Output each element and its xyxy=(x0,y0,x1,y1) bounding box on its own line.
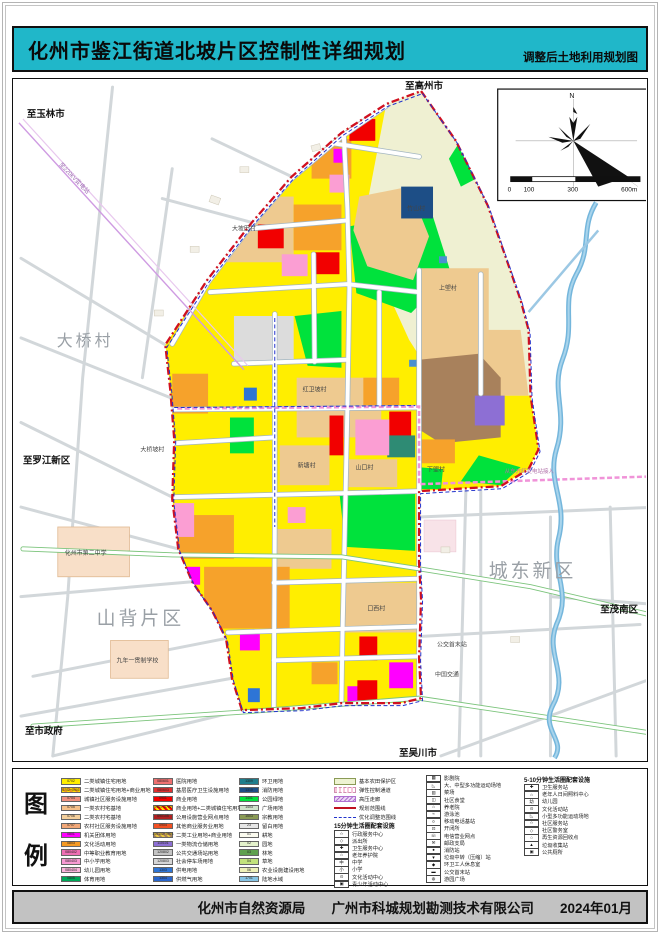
label-hv-line: 至220kV变电站 xyxy=(57,161,91,196)
legend-label: 青少年活动中心 xyxy=(352,881,388,888)
legend-swatch: 0702 xyxy=(61,778,81,784)
legend-label: 文化活动站 xyxy=(542,806,568,813)
legend-label: 农村社区服务设施用地 xyxy=(84,822,137,830)
legend-label: 农业设施建设用地 xyxy=(262,866,304,874)
legend-item: 04草地 xyxy=(239,857,304,866)
legend-label: 二类城镇住宅用地+商业用地 xyxy=(84,786,151,794)
compass-scale-box: N 0 100 300 600m xyxy=(498,89,646,200)
legend-label: 文化活动用地 xyxy=(84,840,116,848)
legend-line-swatch xyxy=(334,778,356,784)
legend-label: 公园绿地 xyxy=(262,795,283,803)
legend-label: 优化调整范围线 xyxy=(359,813,396,821)
legend-label: 高压走廊 xyxy=(359,795,380,803)
legend-col-5: ▦影剧院◺大、中型多功能运动场地▥菜场◫社区食堂⌂养老院≈游泳池¤移动电话基站⊡… xyxy=(426,775,501,883)
legend-item: 0702二类城镇住宅用地 xyxy=(61,777,151,786)
legend-swatch: 1401 xyxy=(239,796,259,802)
legend-label: 一类农村宅基地 xyxy=(84,804,121,812)
legend-swatch: 0901+0702 xyxy=(153,805,173,811)
label-school2: 化州市第二中学 xyxy=(65,549,107,557)
legend-facility-item: ▣青少年活动中心 xyxy=(334,881,396,888)
legend-label: 林地 xyxy=(262,849,273,857)
legend-label: 老年养护院 xyxy=(352,852,378,859)
legend-label: 社区警务室 xyxy=(542,827,568,834)
label-jiaotong: 中国交通 xyxy=(435,670,459,678)
parcels-layer xyxy=(165,91,538,710)
label-corridor: 从东方红变电站接入 xyxy=(505,467,555,475)
legend-label: 小型多功能运动场地 xyxy=(542,813,589,820)
legend-item: 1701陆地水域 xyxy=(239,875,304,884)
page-subtitle: 调整后土地利用规划图 xyxy=(523,49,646,70)
legend-swatch: 01 xyxy=(239,832,259,838)
legend-item: 080404幼儿园用地 xyxy=(61,866,151,875)
legend-label: 草地 xyxy=(262,857,273,865)
legend-label: 基本农田保护区 xyxy=(359,777,396,785)
label-to-shizhengfu: 至市政府 xyxy=(25,725,63,737)
legend-item: 1403广场用地 xyxy=(239,804,304,813)
label-to-gaozhou: 至高州市 xyxy=(405,80,443,92)
legend-item: 1309环卫用地 xyxy=(239,777,304,786)
legend-swatch: 0702+0901 xyxy=(61,787,81,793)
legend-item: 0801机关团体用地 xyxy=(61,830,151,839)
legend-label: 商业用地 xyxy=(176,795,197,803)
legend-char-li: 例 xyxy=(24,836,48,871)
legend-label: 二类农村宅基地 xyxy=(84,813,121,821)
legend-label: 二类城镇住宅用地 xyxy=(84,777,126,785)
legend-facility-item: ◍游园广场 xyxy=(426,876,501,883)
legend-label: 游园广场 xyxy=(444,876,465,883)
label-daqiaopo: 大桥坡村 xyxy=(140,445,164,453)
legend-label: 其他商业服务业用地 xyxy=(176,822,224,830)
legend-swatch: 0805 xyxy=(61,876,81,882)
label-hongwei: 红卫坡村 xyxy=(303,386,327,394)
legend-item: 0805体育用地 xyxy=(61,875,151,884)
label-dapotian: 大坡田村 xyxy=(232,224,256,232)
label-xialang: 下塱村 xyxy=(427,465,445,473)
legend-label: 城镇社区服务设施用地 xyxy=(84,795,137,803)
legend-swatch: 1701 xyxy=(239,876,259,882)
label-to-luojiang: 至罗江新区 xyxy=(23,454,71,466)
scale-tick-300: 300 xyxy=(567,187,578,194)
legend-section-title: 15分钟生活圈配套设施 xyxy=(334,821,396,830)
legend-item: 0706二类农村宅基地 xyxy=(61,813,151,822)
legend-swatch: 110101 xyxy=(153,841,173,847)
legend-swatch: 04 xyxy=(239,858,259,864)
title-bar: 化州市鉴江街道北坡片区控制性详细规划 调整后土地利用规划图 xyxy=(12,26,648,72)
legend-label: 医院用地 xyxy=(176,777,197,785)
label-kouxi: 口西村 xyxy=(367,605,385,613)
legend-label: 中小学用地 xyxy=(84,857,111,865)
legend-swatch: 100102+0901 xyxy=(153,832,173,838)
footer-bar: 化州市自然资源局 广州市科城规划勘测技术有限公司 2024年01月 xyxy=(12,890,648,924)
legend-label: 小学 xyxy=(352,866,362,873)
legend-line-swatch xyxy=(334,796,356,802)
legend-label: 基层医疗卫生设施用地 xyxy=(176,786,229,794)
legend-swatch: 0707 xyxy=(61,823,81,829)
legend-swatch: 0801 xyxy=(61,832,81,838)
legend-swatch: 0705 xyxy=(61,805,81,811)
legend-label: 社会停车场用地 xyxy=(176,857,213,865)
legend-line-swatch xyxy=(334,817,356,818)
legend-label: 陆地水域 xyxy=(262,875,283,883)
legend-item: 03林地 xyxy=(239,848,304,857)
legend-label: 商业用地+二类城镇住宅用地 xyxy=(176,804,243,812)
label-shanglang: 上塱村 xyxy=(439,284,457,292)
legend-item: 弹性控制通道 xyxy=(334,786,396,795)
east-district-parcel xyxy=(424,520,456,552)
legend-label: 菜场 xyxy=(444,789,454,796)
legend-label: 大、中型多功能运动场地 xyxy=(444,782,501,789)
page-title: 化州市鉴江街道北坡片区控制性详细规划 xyxy=(14,35,406,64)
legend-label: 移动电话基站 xyxy=(444,818,475,825)
legend-label: 幼儿园用地 xyxy=(84,866,111,874)
legend-label: 二类工业用地+商业用地 xyxy=(176,831,232,839)
legend-item: 0901商业用地 xyxy=(153,795,243,804)
legend-swatch: 0901 xyxy=(153,796,173,802)
legend-label: 弹性控制通道 xyxy=(359,786,391,794)
label-to-yulin: 至玉林市 xyxy=(27,108,65,120)
legend-label: 一类物流仓储用地 xyxy=(176,840,218,848)
legend-label: 宗教用地 xyxy=(262,813,283,821)
legend-item: 080403中小学用地 xyxy=(61,857,151,866)
scale-tick-100: 100 xyxy=(524,187,535,194)
label-to-wuchuan: 至吴川市 xyxy=(399,747,437,759)
legend-item: 110101一类物流仓储用地 xyxy=(153,839,243,848)
legend-swatch: 06 xyxy=(239,867,259,873)
legend-swatch: 0706 xyxy=(61,814,81,820)
label-daqiao-village: 大桥村 xyxy=(57,332,114,350)
legend-col-3: 1309环卫用地1310消防用地1401公园绿地1403广场用地1503宗教用地… xyxy=(239,777,304,884)
legend-swatch: 1403 xyxy=(239,805,259,811)
legend-label: 环卫工人休息室 xyxy=(444,861,480,868)
north-label: N xyxy=(569,93,574,100)
legend-swatch: 0803 xyxy=(61,841,81,847)
stream xyxy=(529,230,599,312)
legend-item: 120803社会停车场用地 xyxy=(153,857,243,866)
legend-label: 文化活动中心 xyxy=(352,874,383,881)
legend-item: 规划范围线 xyxy=(334,804,396,813)
legend-swatch: 120802 xyxy=(153,849,173,855)
legend-swatch: 080601 xyxy=(153,778,173,784)
legend-label: 公共厕所 xyxy=(542,849,563,856)
legend-line-swatch xyxy=(334,787,356,793)
legend-label: 派出所 xyxy=(352,838,368,845)
legend-label: 留白用地 xyxy=(262,822,283,830)
label-shankou: 山口村 xyxy=(355,463,373,471)
plan-sheet: 化州市鉴江街道北坡片区控制性详细规划 调整后土地利用规划图 xyxy=(0,0,660,934)
label-bus-terminal: 公交首末站 xyxy=(437,640,467,648)
legend-item: 080603基层医疗卫生设施用地 xyxy=(153,786,243,795)
legend-label: 机关团体用地 xyxy=(84,831,116,839)
legend-label: 园地 xyxy=(262,840,273,848)
legend-swatch: 03 xyxy=(239,849,259,855)
legend-label: 行政服务中心 xyxy=(352,831,383,838)
legend-char-tu: 图 xyxy=(24,784,48,819)
legend-label: 卫生服务站 xyxy=(542,784,568,791)
legend-label: 环卫用地 xyxy=(262,777,283,785)
legend-label: 公交首末站 xyxy=(444,869,470,876)
legend-swatch: 23 xyxy=(239,823,259,829)
legend-swatch: 1304 xyxy=(153,876,173,882)
legend-facility-item: ▣公共厕所 xyxy=(524,849,590,856)
legend-swatch: 120803 xyxy=(153,858,173,864)
footer-company: 广州市科城规划勘测技术有限公司 xyxy=(331,897,534,917)
legend-label: 邮政支局 xyxy=(444,840,465,847)
legend-swatch: 080402 xyxy=(61,849,81,855)
label-to-maonan: 至茂南区 xyxy=(600,604,638,616)
legend-swatch: 1310 xyxy=(239,787,259,793)
legend-label: 供电用地 xyxy=(176,866,197,874)
legend-item: 100102+0901二类工业用地+商业用地 xyxy=(153,830,243,839)
legend-item: 0702+0901二类城镇住宅用地+商业用地 xyxy=(61,786,151,795)
legend-item: 080601医院用地 xyxy=(153,777,243,786)
facility-icon: ▣ xyxy=(334,881,349,889)
legend-line-swatch xyxy=(334,807,356,810)
legend-col-2: 080601医院用地080603基层医疗卫生设施用地0901商业用地0901+0… xyxy=(153,777,243,884)
legend-item: 06农业设施建设用地 xyxy=(239,866,304,875)
facility-icon: ▣ xyxy=(524,848,539,856)
legend-label: 电信营业网点 xyxy=(444,833,475,840)
legend-label: 卫生服务中心 xyxy=(352,845,383,852)
legend-item: 1303供电用地 xyxy=(153,866,243,875)
footer-org: 化州市自然资源局 xyxy=(197,897,305,917)
legend-swatch: 080603 xyxy=(153,787,173,793)
landuse-map-svg: N 0 100 300 600m 至玉林市 至高 xyxy=(13,79,646,760)
label-shanbei-area: 山背片区 xyxy=(97,608,185,630)
legend-col-1: 0702二类城镇住宅用地0702+0901二类城镇住宅用地+商业用地0704城镇… xyxy=(61,777,151,884)
footer-date: 2024年01月 xyxy=(560,897,632,917)
facility-icon: ◍ xyxy=(426,875,441,883)
label-chengdong-area: 城东新区 xyxy=(489,560,577,582)
legend-swatch: 0904 xyxy=(153,823,173,829)
legend-box: 图 例 0702二类城镇住宅用地0702+0901二类城镇住宅用地+商业用地07… xyxy=(12,768,648,886)
legend-item: 0707农村社区服务设施用地 xyxy=(61,821,151,830)
legend-item: 01耕地 xyxy=(239,830,304,839)
legend-item: 高压走廊 xyxy=(334,795,396,804)
legend-label: 消防站 xyxy=(444,847,460,854)
legend-label: 幼儿园 xyxy=(542,798,558,805)
legend-item: 基本农田保护区 xyxy=(334,777,396,786)
legend-item: 0901+0702商业用地+二类城镇住宅用地 xyxy=(153,804,243,813)
scale-tick-600: 600m xyxy=(621,187,637,194)
legend-item: 120802公共交通场站用地 xyxy=(153,848,243,857)
scale-tick-0: 0 xyxy=(508,187,512,194)
legend-label: 社区服务站 xyxy=(542,820,568,827)
legend-swatch: 02 xyxy=(239,841,259,847)
legend-swatch: 1503 xyxy=(239,814,259,820)
legend-section-title: 5-10分钟生活圈配套设施 xyxy=(524,775,590,784)
legend-item: 090105公用设施营业网点用地 xyxy=(153,813,243,822)
legend-item: 1401公园绿地 xyxy=(239,795,304,804)
legend-col-6: 5-10分钟生活圈配套设施✚卫生服务站⌂老年人日间照料中心幼幼儿园⊙文化活动站◺… xyxy=(524,775,590,856)
legend-label: 公共交通场站用地 xyxy=(176,849,218,857)
legend-label: 规划范围线 xyxy=(359,804,386,812)
legend-label: 广场用地 xyxy=(262,804,283,812)
legend-label: 养老院 xyxy=(444,804,460,811)
legend-label: 开闭所 xyxy=(444,825,460,832)
legend-label: 公用设施营业网点用地 xyxy=(176,813,229,821)
legend-label: 中学 xyxy=(352,859,362,866)
legend-label: 影剧院 xyxy=(444,775,460,782)
legend-label: 老年人日间照料中心 xyxy=(542,791,589,798)
legend-item: 1503宗教用地 xyxy=(239,813,304,822)
legend-item: 0704城镇社区服务设施用地 xyxy=(61,795,151,804)
legend-item: 1304供燃气用地 xyxy=(153,875,243,884)
legend-item: 0904其他商业服务业用地 xyxy=(153,821,243,830)
legend-label: 体育用地 xyxy=(84,875,105,883)
legend-item: 080402中等职业教育用地 xyxy=(61,848,151,857)
legend-swatch: 090105 xyxy=(153,814,173,820)
legend-item: 1310消防用地 xyxy=(239,786,304,795)
legend-item: 0803文化活动用地 xyxy=(61,839,151,848)
map-canvas[interactable]: N 0 100 300 600m 至玉林市 至高 xyxy=(12,78,648,762)
legend-panel-title: 图 例 xyxy=(19,775,53,879)
legend-item: 02园地 xyxy=(239,839,304,848)
legend-label: 社区食堂 xyxy=(444,797,465,804)
legend-label: 垃圾收集站 xyxy=(542,842,568,849)
legend-swatch: 1309 xyxy=(239,778,259,784)
label-zhushan: 竹山村 xyxy=(407,204,425,212)
legend-item: 23留白用地 xyxy=(239,821,304,830)
legend-label: 再生资源回收点 xyxy=(542,834,578,841)
legend-swatch: 080403 xyxy=(61,858,81,864)
legend-label: 消防用地 xyxy=(262,786,283,794)
label-school9: 九年一贯制学校 xyxy=(117,656,159,664)
legend-col-4: 基本农田保护区弹性控制通道高压走廊规划范围线优化调整范围线15分钟生活圈配套设施… xyxy=(334,777,396,888)
label-xintang: 新塘村 xyxy=(298,461,316,469)
legend-label: 耕地 xyxy=(262,831,273,839)
legend-swatch: 0704 xyxy=(61,796,81,802)
legend-item: 优化调整范围线 xyxy=(334,813,396,822)
legend-label: 垃圾中转（压缩）站 xyxy=(444,854,491,861)
legend-swatch: 080404 xyxy=(61,867,81,873)
legend-swatch: 1303 xyxy=(153,867,173,873)
legend-label: 供燃气用地 xyxy=(176,875,203,883)
legend-label: 游泳池 xyxy=(444,811,460,818)
legend-label: 中等职业教育用地 xyxy=(84,849,126,857)
legend-item: 0705一类农村宅基地 xyxy=(61,804,151,813)
